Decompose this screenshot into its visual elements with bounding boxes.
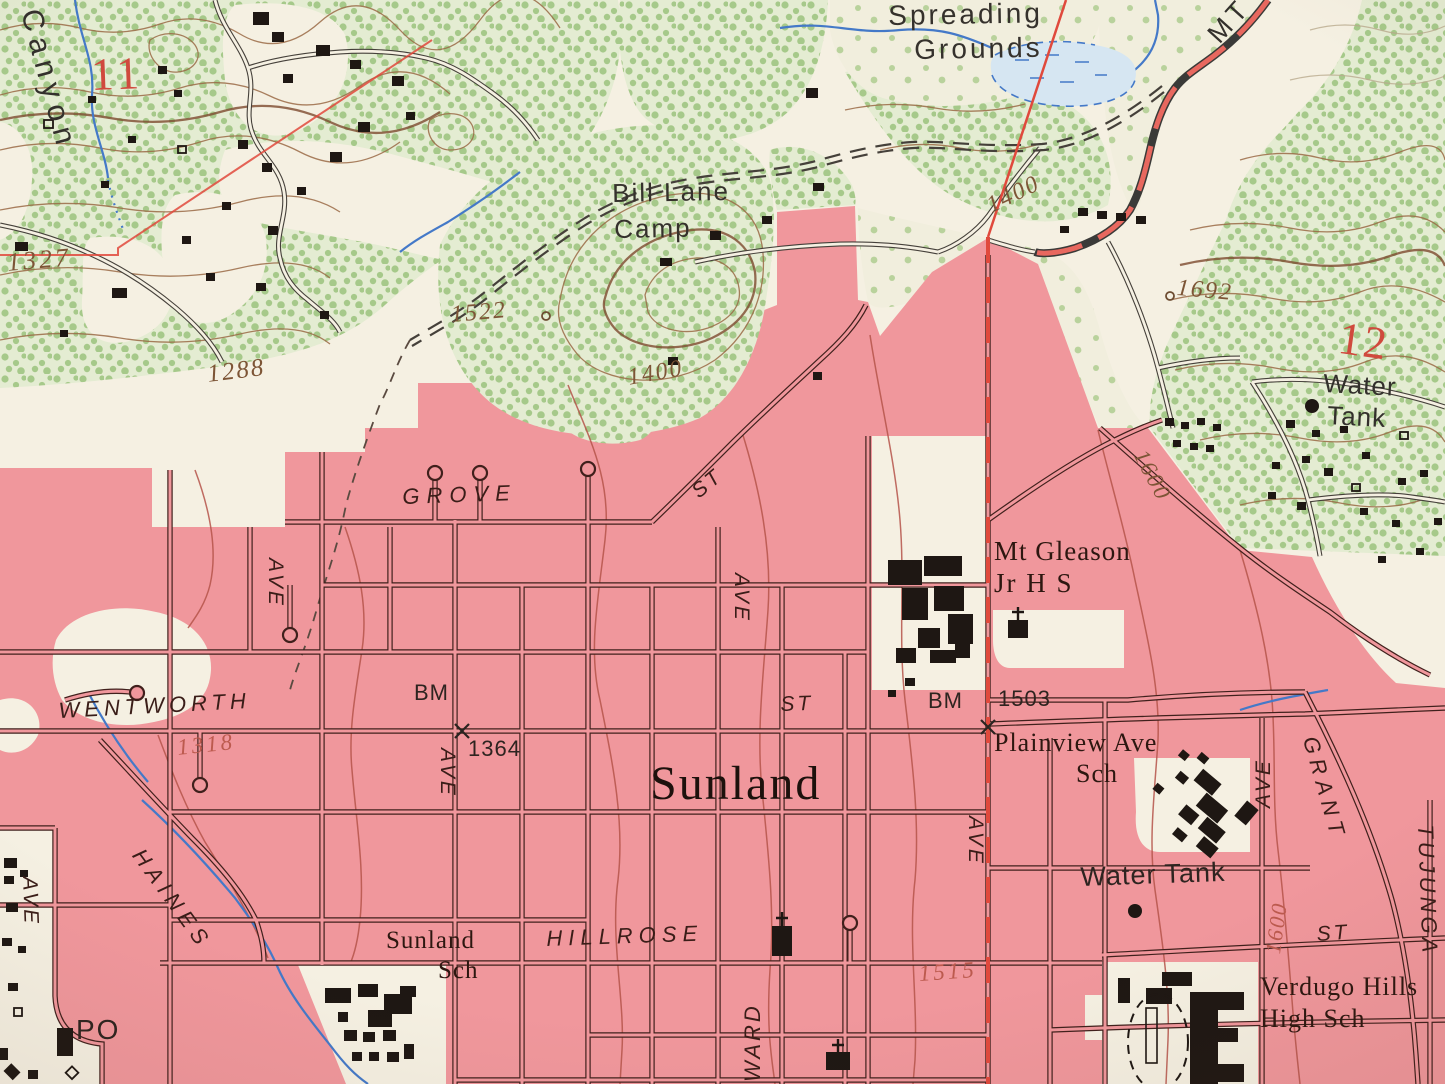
label-contour-1600-a: 1600 [1130,446,1176,504]
label-school-sunland-2: Sch [438,958,479,983]
map-photo: Canyon111327SpreadingGroundsBill LaneCam… [0,0,1445,1084]
label-bm-1503-val: 1503 [998,688,1051,710]
label-street-grant: GRANT [1299,734,1350,843]
label-contour-1515: 1515 [918,958,977,985]
label-bm-1503-bm: BM [928,690,963,712]
label-bm-1364-bm: BM [414,682,449,704]
label-water-tank-2: Water Tank [1080,859,1226,891]
label-school-verdugo-2: High Sch [1260,1006,1366,1032]
label-street-st-grant: ST [1316,922,1350,945]
label-water-tank-1a: Water [1323,370,1398,400]
label-water-tank-1b: Tank [1327,402,1387,431]
label-school-plainview-2: Sch [1076,761,1118,787]
label-spreading: Spreading [888,0,1043,30]
label-street-ave-1: AVE [265,558,286,608]
label-bm-1364-val: 1364 [468,738,521,760]
label-street-tujunga: TUJUNGA [1414,824,1441,957]
label-section-12: 12 [1336,315,1392,368]
label-contour-1400-a: 1400 [983,171,1044,217]
label-section-11: 11 [90,50,144,98]
label-grounds: Grounds [914,34,1043,64]
label-canyon: Canyon [15,6,82,154]
label-street-ave-6: AVE [965,816,986,866]
label-street-ave-5: AVE [19,876,42,927]
label-contour-1318: 1318 [176,730,236,759]
label-street-ave-3: AVE [731,573,752,623]
label-spot-1522: 1522 [450,298,508,327]
label-street-grove: GROVE [402,482,517,508]
label-street-wentworth: WENTWORTH [58,690,251,722]
label-contour-1288: 1288 [206,355,267,387]
label-spot-1327: 1327 [6,244,72,275]
label-school-verdugo-1: Verdugo Hills [1260,974,1418,1000]
label-po: PO [76,1016,120,1044]
label-street-wentworth-st: ST [780,693,814,715]
label-street-hillrose: HILLROSE [546,923,704,950]
label-street-grove-st: ST [688,465,727,502]
label-camp: Camp [614,215,692,242]
label-school-plainview-1: Plainview Ave [994,730,1157,756]
label-bill-lane: Bill Lane [612,178,730,206]
label-place-sunland: Sunland [650,760,821,808]
label-street-ward: WARD [742,1003,764,1082]
map-labels: Canyon111327SpreadingGroundsBill LaneCam… [0,0,1445,1084]
label-contour-1400-b: 1400 [626,356,685,389]
label-school-mt-gleason-1: Mt Gleason [994,538,1131,565]
label-school-sunland-1: Sunland [386,928,475,953]
label-street-ave-2: AVE [437,748,458,798]
label-street-ave-4: AVE [1253,758,1274,808]
label-school-mt-gleason-2: Jr H S [994,570,1074,597]
label-spot-1692: 1692 [1176,276,1234,305]
label-road-mt: MT [1203,0,1256,48]
label-contour-1600-b: 1600 [1262,901,1291,956]
label-street-haines: HAINES [128,845,215,953]
